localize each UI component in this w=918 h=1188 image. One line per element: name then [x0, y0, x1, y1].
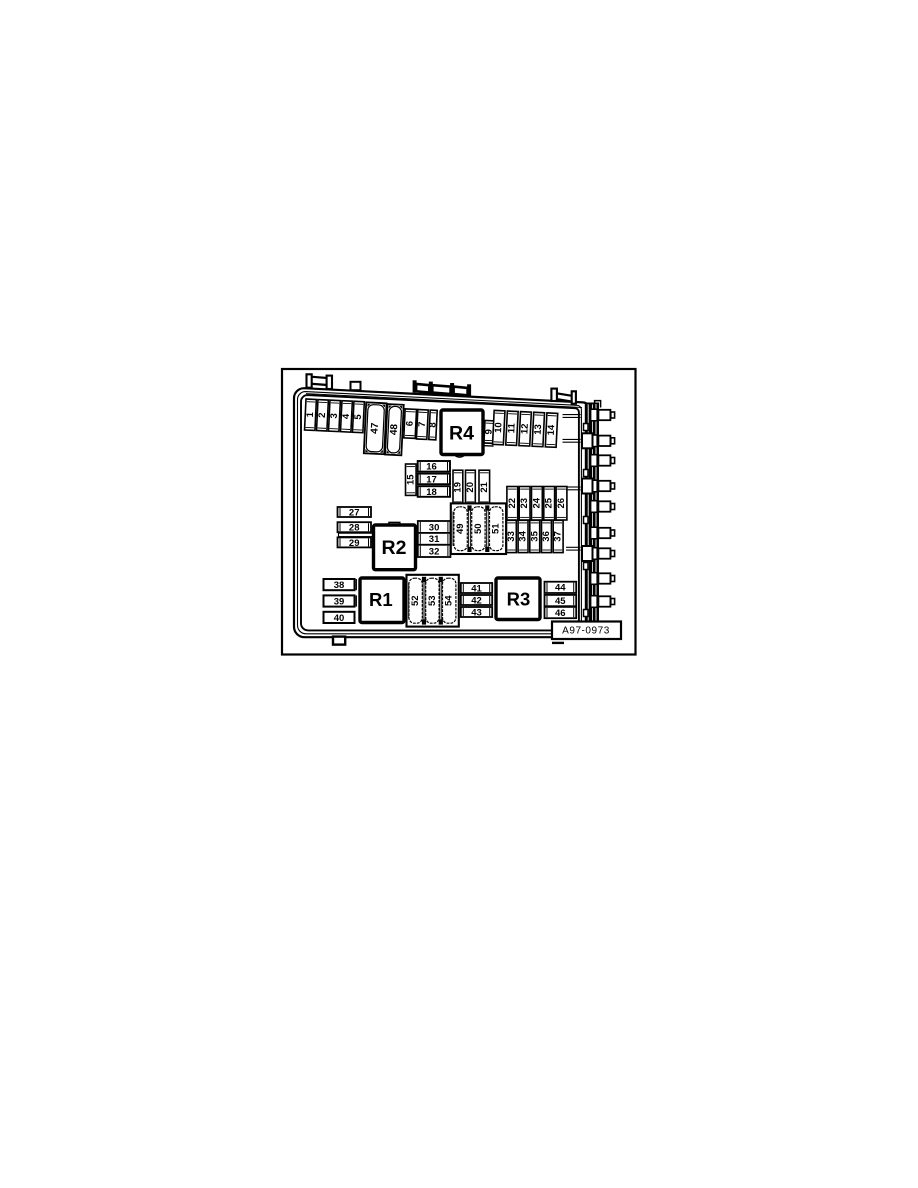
svg-text:6: 6 — [405, 421, 416, 427]
svg-text:28: 28 — [349, 523, 360, 534]
svg-text:23: 23 — [519, 498, 530, 509]
svg-text:R2: R2 — [382, 537, 407, 559]
svg-text:37: 37 — [553, 531, 564, 542]
svg-text:38: 38 — [334, 580, 345, 591]
svg-text:53: 53 — [427, 595, 438, 606]
svg-text:45: 45 — [555, 596, 566, 607]
svg-text:34: 34 — [518, 530, 529, 541]
svg-text:42: 42 — [471, 595, 482, 606]
svg-text:R1: R1 — [369, 589, 393, 610]
svg-text:R4: R4 — [449, 423, 474, 445]
svg-text:17: 17 — [426, 474, 437, 485]
svg-text:13: 13 — [533, 424, 544, 435]
svg-text:18: 18 — [426, 487, 437, 498]
svg-text:41: 41 — [471, 583, 482, 594]
svg-text:43: 43 — [471, 607, 482, 618]
svg-text:10: 10 — [493, 422, 504, 433]
svg-text:25: 25 — [544, 497, 555, 508]
svg-text:19: 19 — [452, 482, 463, 493]
svg-text:51: 51 — [491, 523, 502, 534]
svg-text:44: 44 — [555, 583, 566, 594]
svg-text:46: 46 — [555, 608, 566, 619]
svg-text:27: 27 — [349, 507, 360, 518]
svg-text:3: 3 — [329, 413, 340, 419]
svg-text:26: 26 — [556, 498, 567, 509]
svg-text:48: 48 — [389, 423, 401, 435]
svg-text:2: 2 — [317, 412, 328, 418]
svg-text:40: 40 — [334, 613, 345, 624]
svg-text:7: 7 — [417, 422, 428, 428]
svg-text:49: 49 — [455, 523, 466, 534]
svg-text:30: 30 — [429, 522, 440, 533]
svg-text:14: 14 — [546, 424, 558, 436]
svg-text:21: 21 — [479, 481, 490, 492]
svg-text:35: 35 — [529, 530, 540, 541]
svg-text:50: 50 — [473, 523, 484, 534]
svg-text:16: 16 — [426, 462, 437, 473]
svg-text:24: 24 — [531, 497, 542, 508]
svg-text:32: 32 — [429, 546, 440, 557]
svg-text:47: 47 — [369, 422, 381, 434]
svg-text:52: 52 — [410, 595, 421, 606]
svg-text:33: 33 — [506, 531, 517, 542]
svg-text:R3: R3 — [507, 588, 531, 609]
svg-text:54: 54 — [444, 595, 455, 606]
svg-text:20: 20 — [465, 482, 476, 493]
svg-text:22: 22 — [507, 498, 518, 509]
svg-text:A97-0973: A97-0973 — [562, 626, 610, 637]
svg-text:31: 31 — [429, 534, 440, 545]
svg-text:29: 29 — [349, 538, 360, 549]
svg-text:36: 36 — [541, 531, 552, 542]
svg-text:12: 12 — [519, 423, 530, 434]
svg-text:8: 8 — [427, 422, 438, 428]
svg-text:39: 39 — [334, 596, 345, 607]
svg-text:11: 11 — [506, 422, 517, 433]
svg-text:15: 15 — [405, 474, 416, 485]
